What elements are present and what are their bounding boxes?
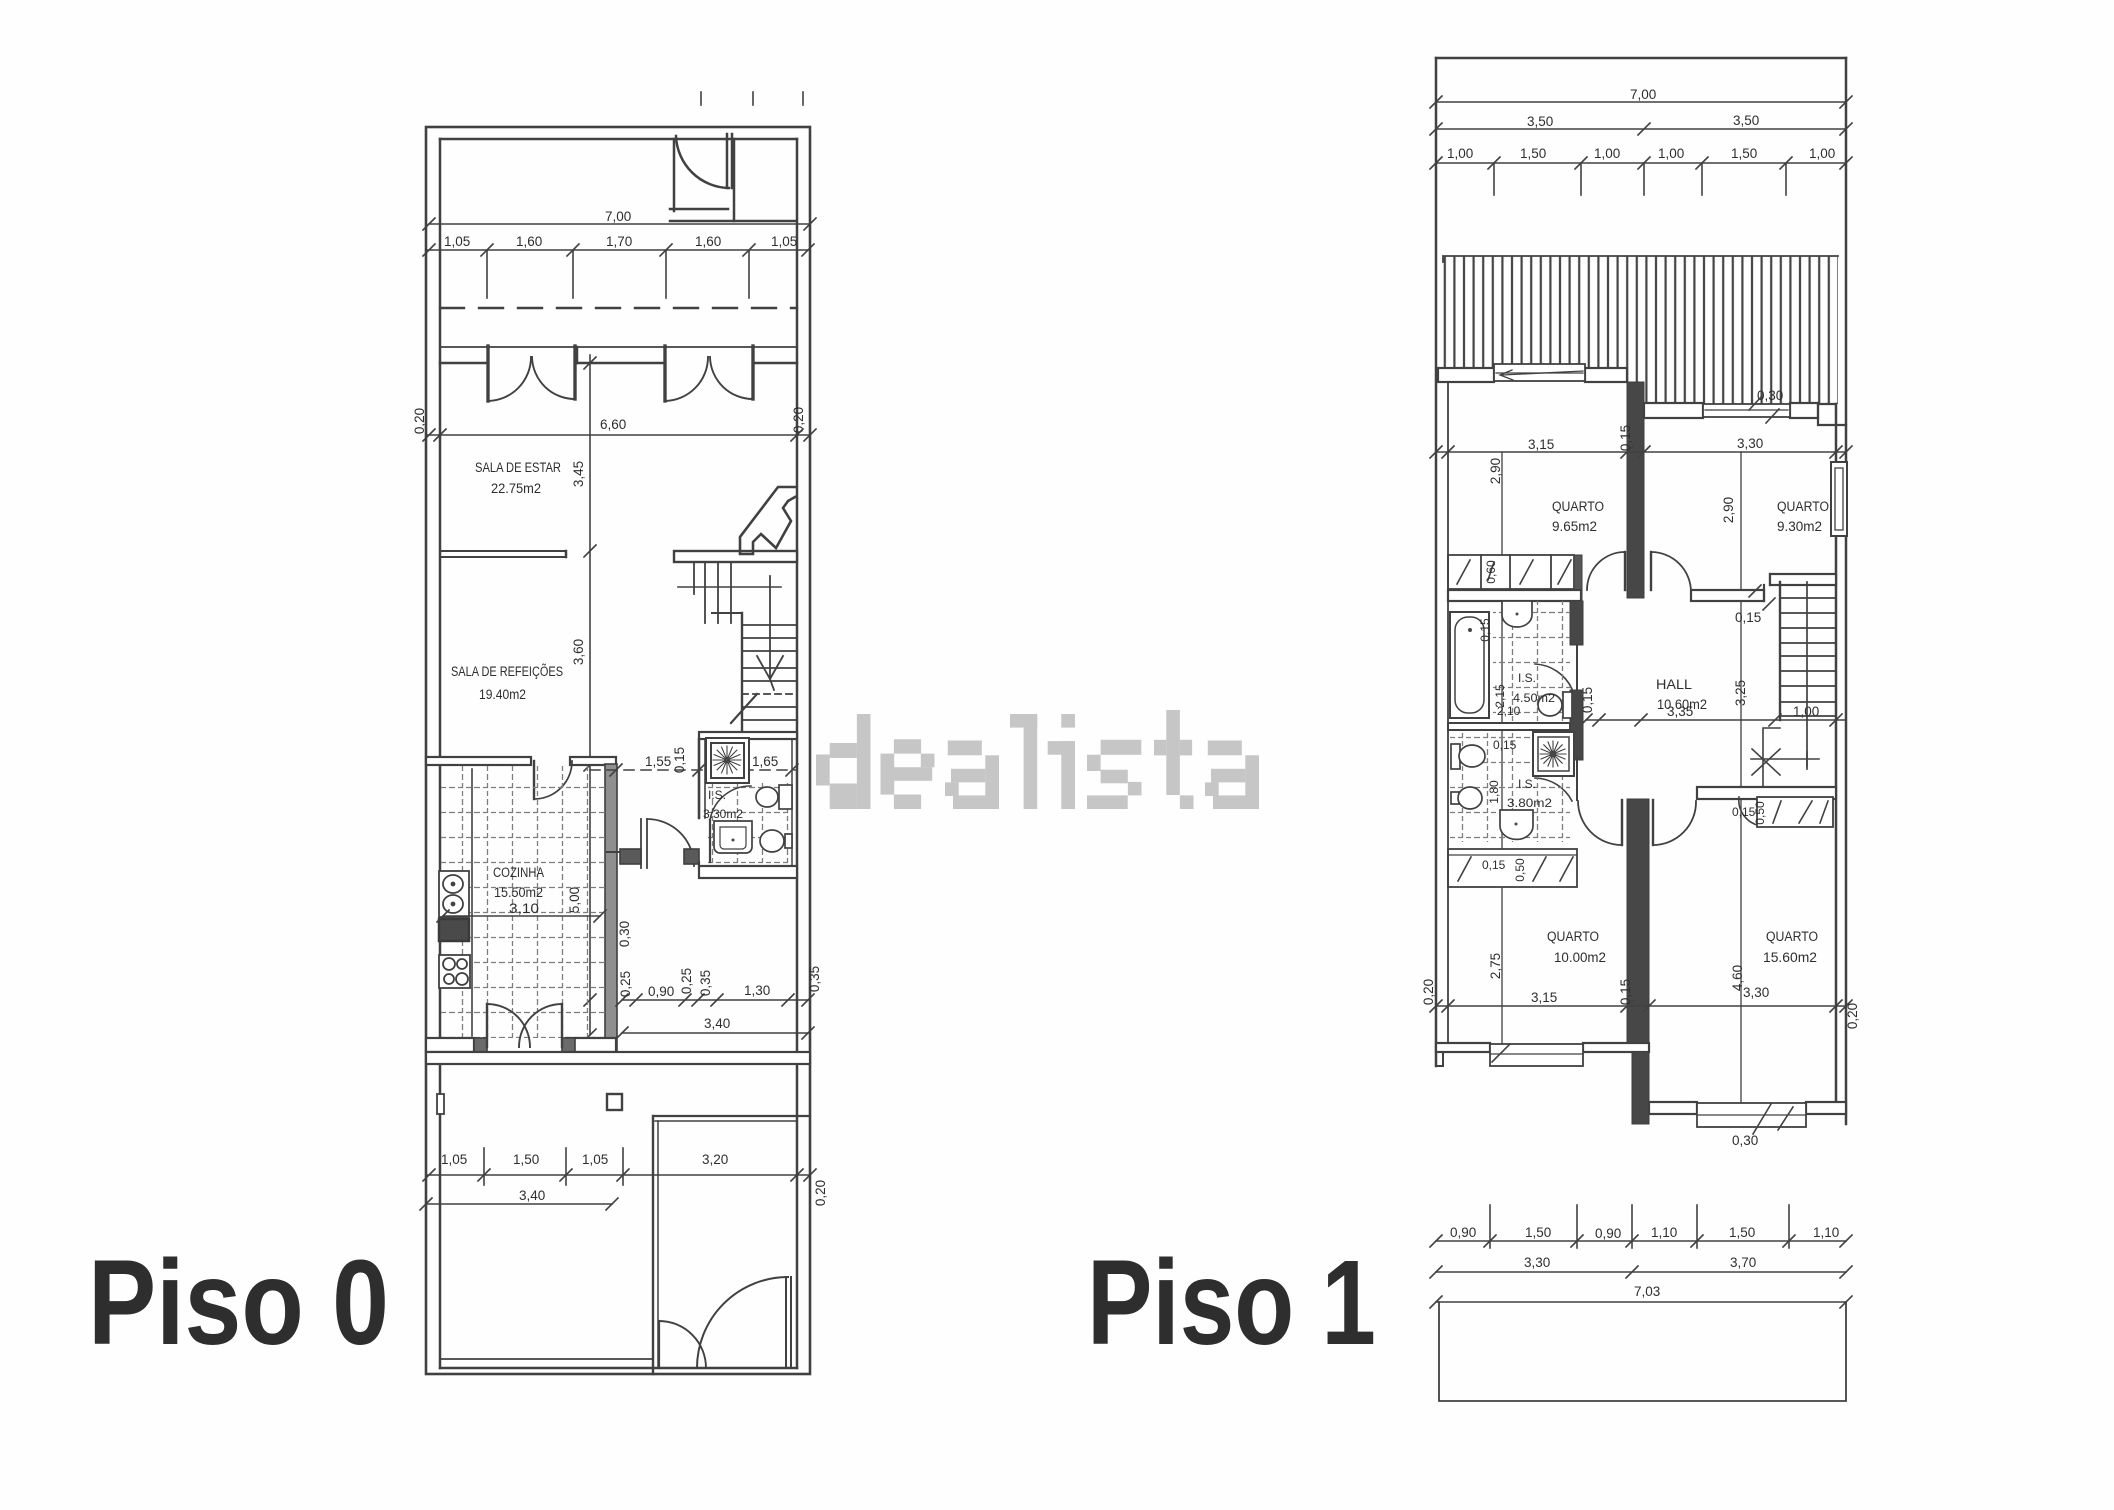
svg-text:1,10: 1,10 xyxy=(1813,1225,1839,1240)
svg-text:1,60: 1,60 xyxy=(516,234,542,249)
svg-text:QUARTO: QUARTO xyxy=(1766,929,1818,944)
svg-text:3,40: 3,40 xyxy=(704,1016,730,1031)
svg-text:1,50: 1,50 xyxy=(1731,146,1757,161)
svg-text:3,45: 3,45 xyxy=(571,461,586,487)
svg-text:I.S.: I.S. xyxy=(1518,777,1536,791)
svg-text:1,70: 1,70 xyxy=(606,234,632,249)
svg-text:SALA DE ESTAR: SALA DE ESTAR xyxy=(475,460,561,475)
svg-text:6,60: 6,60 xyxy=(600,417,626,432)
svg-text:1,05: 1,05 xyxy=(444,234,470,249)
svg-text:3.30m2: 3.30m2 xyxy=(703,807,743,821)
svg-text:3,30: 3,30 xyxy=(1524,1255,1550,1270)
svg-text:1,50: 1,50 xyxy=(1729,1225,1755,1240)
svg-text:0,30: 0,30 xyxy=(1757,388,1783,403)
svg-text:0,15: 0,15 xyxy=(1618,979,1633,1005)
svg-text:HALL: HALL xyxy=(1656,677,1693,692)
svg-text:3,40: 3,40 xyxy=(519,1188,545,1203)
svg-text:9.30m2: 9.30m2 xyxy=(1777,519,1822,534)
svg-text:1,05: 1,05 xyxy=(582,1152,608,1167)
svg-text:1,05: 1,05 xyxy=(441,1152,467,1167)
svg-text:1,50: 1,50 xyxy=(1520,146,1546,161)
svg-text:3,60: 3,60 xyxy=(571,639,586,665)
svg-text:1,60: 1,60 xyxy=(695,234,721,249)
svg-text:3,50: 3,50 xyxy=(1733,113,1759,128)
svg-text:0,20: 0,20 xyxy=(813,1180,828,1206)
svg-text:9.65m2: 9.65m2 xyxy=(1552,519,1597,534)
svg-text:1,50: 1,50 xyxy=(1525,1225,1551,1240)
svg-text:3,20: 3,20 xyxy=(702,1152,728,1167)
svg-text:0,15: 0,15 xyxy=(1478,618,1492,642)
svg-text:1,00: 1,00 xyxy=(1594,146,1620,161)
svg-text:0,15: 0,15 xyxy=(1618,425,1633,451)
svg-text:Piso 1: Piso 1 xyxy=(1087,1234,1376,1370)
svg-text:0,90: 0,90 xyxy=(1450,1225,1476,1240)
svg-text:3,30: 3,30 xyxy=(1743,985,1769,1000)
svg-text:0,90: 0,90 xyxy=(648,984,674,999)
svg-text:Piso 0: Piso 0 xyxy=(88,1234,389,1370)
svg-text:0,15: 0,15 xyxy=(1735,610,1761,625)
svg-text:1,50: 1,50 xyxy=(513,1152,539,1167)
svg-text:QUARTO: QUARTO xyxy=(1777,499,1829,514)
svg-text:0,15: 0,15 xyxy=(1493,738,1517,752)
svg-text:1,30: 1,30 xyxy=(744,983,770,998)
svg-text:3.80m2: 3.80m2 xyxy=(1507,796,1552,810)
svg-text:7,00: 7,00 xyxy=(605,209,631,224)
svg-text:0,15: 0,15 xyxy=(1482,858,1506,872)
svg-text:COZINHA: COZINHA xyxy=(493,865,544,880)
svg-text:1,00: 1,00 xyxy=(1809,146,1835,161)
svg-text:7,00: 7,00 xyxy=(1630,87,1656,102)
svg-text:0,60: 0,60 xyxy=(1484,560,1498,584)
svg-text:0,25: 0,25 xyxy=(679,968,694,994)
svg-text:0,20: 0,20 xyxy=(412,408,427,434)
svg-text:I.S.: I.S. xyxy=(1518,671,1536,685)
svg-text:0,20: 0,20 xyxy=(1421,979,1436,1005)
svg-text:3,10: 3,10 xyxy=(509,901,539,916)
svg-text:0,35: 0,35 xyxy=(807,966,822,992)
svg-text:1,05: 1,05 xyxy=(771,234,797,249)
svg-text:2,10: 2,10 xyxy=(1497,704,1521,718)
svg-text:QUARTO: QUARTO xyxy=(1552,499,1604,514)
svg-text:3,15: 3,15 xyxy=(1528,437,1554,452)
svg-text:1,00: 1,00 xyxy=(1447,146,1473,161)
svg-text:1,00: 1,00 xyxy=(1658,146,1684,161)
svg-text:I.S.: I.S. xyxy=(708,788,726,802)
svg-text:1,65: 1,65 xyxy=(752,754,778,769)
svg-text:3,25: 3,25 xyxy=(1733,680,1748,706)
svg-text:3,50: 3,50 xyxy=(1527,114,1553,129)
svg-text:0,30: 0,30 xyxy=(617,921,632,947)
svg-text:3,35: 3,35 xyxy=(1667,704,1693,719)
svg-text:QUARTO: QUARTO xyxy=(1547,929,1599,944)
svg-text:0,15: 0,15 xyxy=(672,747,687,773)
svg-text:19.40m2: 19.40m2 xyxy=(479,687,526,702)
svg-text:3,30: 3,30 xyxy=(1737,436,1763,451)
svg-text:1,80: 1,80 xyxy=(1487,780,1501,804)
svg-text:SALA DE REFEIÇÕES: SALA DE REFEIÇÕES xyxy=(451,664,563,679)
svg-text:0,50: 0,50 xyxy=(1753,801,1767,825)
svg-text:0,90: 0,90 xyxy=(1595,1226,1621,1241)
svg-text:1,10: 1,10 xyxy=(1651,1225,1677,1240)
svg-text:0,25: 0,25 xyxy=(618,971,633,997)
svg-text:7,03: 7,03 xyxy=(1634,1284,1660,1299)
svg-text:22.75m2: 22.75m2 xyxy=(491,481,541,496)
svg-text:3,15: 3,15 xyxy=(1531,990,1557,1005)
svg-text:0,35: 0,35 xyxy=(698,970,713,996)
svg-text:2,90: 2,90 xyxy=(1488,458,1503,484)
svg-text:3,70: 3,70 xyxy=(1730,1255,1756,1270)
svg-text:15.60m2: 15.60m2 xyxy=(1763,950,1817,965)
svg-text:2,90: 2,90 xyxy=(1721,497,1736,523)
svg-text:0,20: 0,20 xyxy=(1845,1003,1860,1029)
svg-text:0,30: 0,30 xyxy=(1732,1133,1758,1148)
svg-text:15.50m2: 15.50m2 xyxy=(494,885,543,900)
svg-text:0,50: 0,50 xyxy=(1513,858,1527,882)
svg-text:1,55: 1,55 xyxy=(645,754,671,769)
svg-text:4.50m2: 4.50m2 xyxy=(1513,691,1555,705)
svg-text:2,75: 2,75 xyxy=(1488,953,1503,979)
svg-text:10.00m2: 10.00m2 xyxy=(1554,950,1606,965)
